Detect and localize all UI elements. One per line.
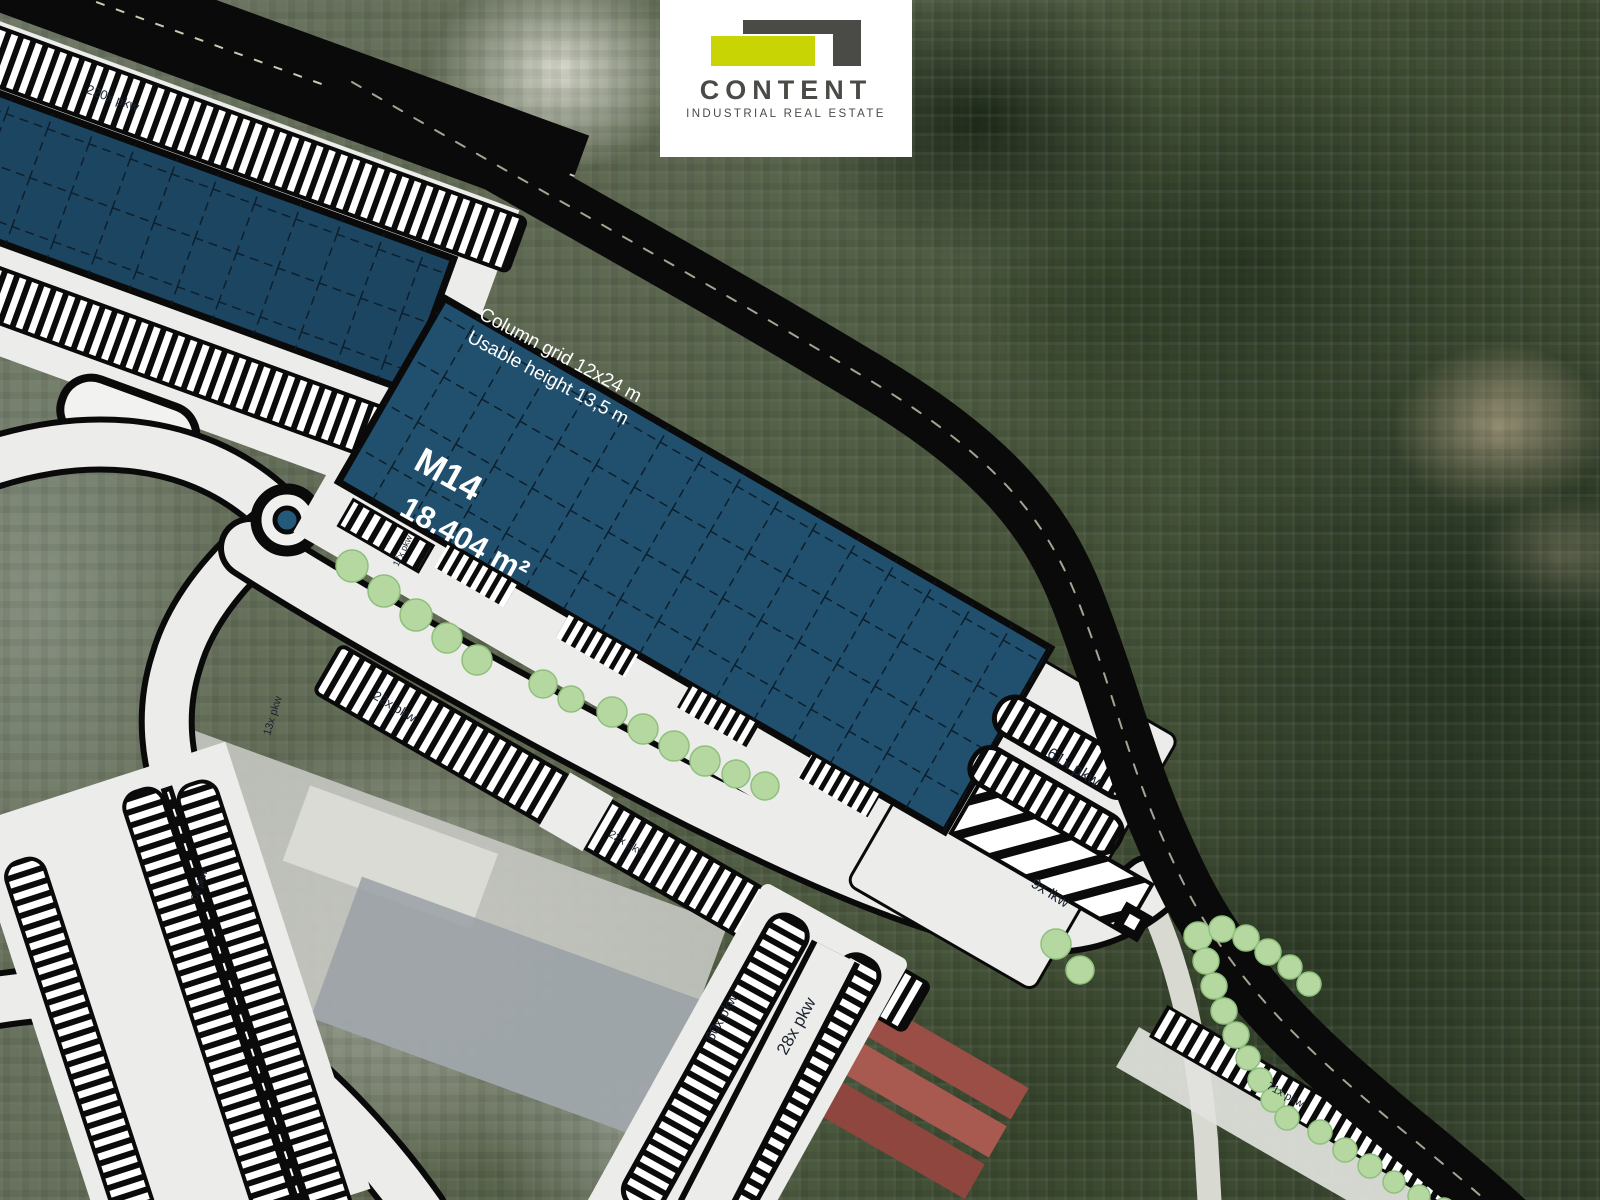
tree: [1383, 1171, 1405, 1193]
tree: [1236, 1046, 1260, 1070]
tree: [368, 575, 400, 607]
tree: [1184, 922, 1212, 950]
tree: [1193, 948, 1219, 974]
tree: [722, 760, 750, 788]
tree: [597, 697, 627, 727]
tree: [1408, 1185, 1430, 1200]
logo-title: CONTENT: [700, 77, 873, 104]
parking-label-13x-pkw: 13x pkw: [261, 695, 284, 737]
tree: [1333, 1138, 1357, 1162]
tree: [1358, 1154, 1382, 1178]
tree: [1278, 955, 1302, 979]
tree: [628, 714, 658, 744]
tree: [1223, 1022, 1249, 1048]
tree: [1297, 972, 1321, 996]
tree: [1308, 1120, 1332, 1144]
site-plan-page: 220x pkw: [0, 0, 1600, 1200]
tree: [1209, 916, 1235, 942]
tree: [1255, 939, 1281, 965]
tree: [690, 746, 720, 776]
tree: [1066, 956, 1094, 984]
tree: [1041, 929, 1071, 959]
tree: [1233, 925, 1259, 951]
site-plan-drawing: 220x pkw: [0, 0, 1600, 1200]
tree: [336, 550, 368, 582]
logo-yellow-bar: [711, 36, 815, 66]
tree: [1211, 998, 1237, 1024]
tree: [558, 686, 584, 712]
content-logo-icon: [711, 20, 861, 66]
tree: [659, 731, 689, 761]
tree: [529, 670, 557, 698]
tree: [751, 772, 779, 800]
tree: [432, 623, 462, 653]
tree: [1201, 973, 1227, 999]
tree: [1275, 1106, 1299, 1130]
tree: [462, 645, 492, 675]
logo-subtitle: INDUSTRIAL REAL ESTATE: [686, 109, 886, 121]
tree: [400, 599, 432, 631]
logo-gray-leg: [833, 20, 861, 66]
logo-card: CONTENT INDUSTRIAL REAL ESTATE: [660, 0, 912, 157]
